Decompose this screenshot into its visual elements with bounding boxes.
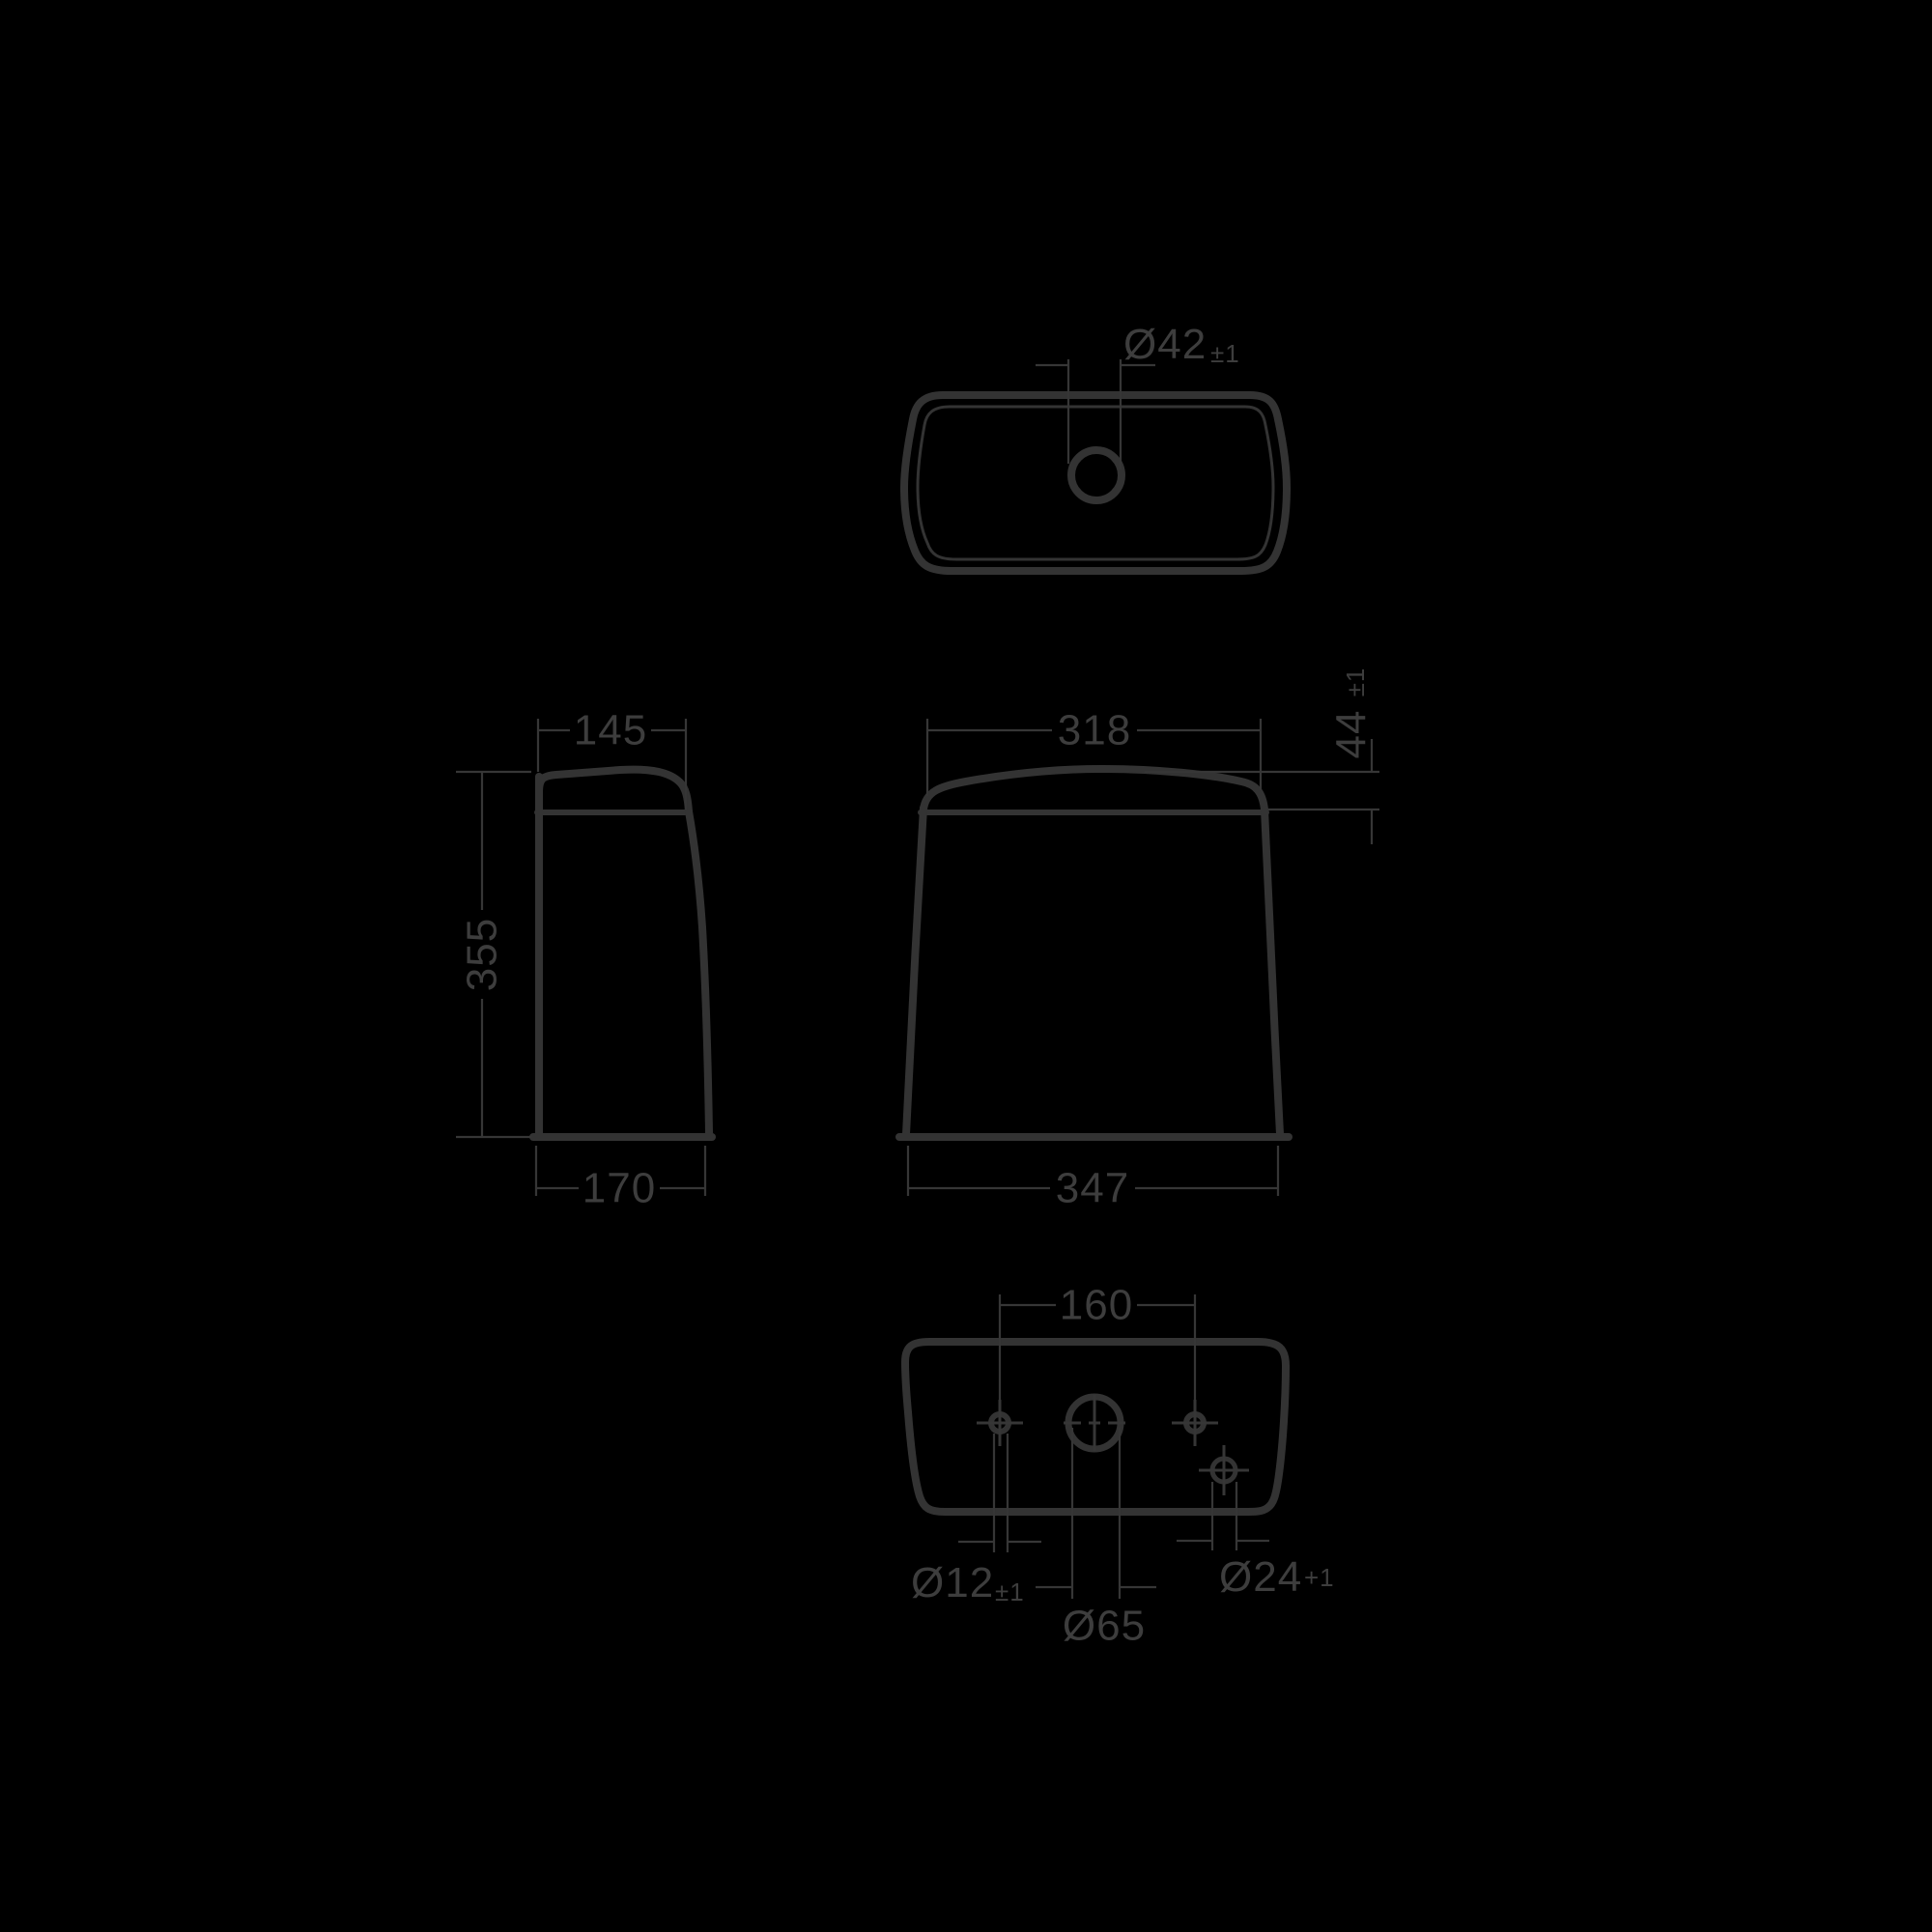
side-right-edge xyxy=(689,811,709,1133)
crosshair xyxy=(977,1400,1023,1446)
dim-label-front-bottom-width: 347 xyxy=(1056,1165,1129,1212)
fixing-hole-right-marker xyxy=(1172,1400,1218,1446)
front-left-edge xyxy=(906,808,923,1134)
technical-drawing: Ø42 ±1 145 355 170 xyxy=(0,0,1932,1932)
extension-line xyxy=(994,1434,1008,1552)
side-view: 145 355 170 xyxy=(456,707,712,1212)
dim-inlet-hole-diameter: Ø24 +1 xyxy=(1177,1482,1335,1601)
dim-label-fixing-hole-spacing: 160 xyxy=(1060,1282,1133,1329)
front-top-arc xyxy=(923,769,1264,810)
fixing-hole-left-marker xyxy=(977,1400,1023,1446)
dim-label-hole-diameter: Ø42 xyxy=(1123,321,1207,368)
dim-flush-valve-diameter: Ø65 xyxy=(1036,1428,1156,1650)
top-view-inner-outline xyxy=(918,407,1273,559)
dim-side-top-width: 145 xyxy=(538,707,686,810)
top-view-outer-outline xyxy=(904,395,1287,571)
dim-side-height: 355 xyxy=(456,772,531,1137)
bottom-view: 160 Ø12 ±1 Ø65 xyxy=(905,1282,1335,1650)
dim-label-front-lid-height: 44 xyxy=(1328,710,1376,759)
dim-tolerance-hole-diameter: ±1 xyxy=(1210,339,1240,368)
top-view: Ø42 ±1 xyxy=(904,321,1287,571)
dim-label-side-top-width: 145 xyxy=(574,707,647,754)
dim-fixing-hole-diameter: Ø12 ±1 xyxy=(911,1434,1041,1606)
front-view: 318 44 ±1 347 xyxy=(899,668,1379,1212)
dim-side-bottom-depth: 170 xyxy=(536,1146,705,1212)
dim-tolerance-fixing-hole: ±1 xyxy=(995,1577,1025,1606)
dim-front-bottom-width: 347 xyxy=(908,1146,1278,1212)
dim-label-inlet-hole-diameter: Ø24 xyxy=(1219,1553,1302,1601)
lid-button-hole xyxy=(1071,450,1122,500)
dim-label-front-top-width: 318 xyxy=(1058,707,1131,754)
dim-label-side-height: 355 xyxy=(459,918,506,991)
drawing-canvas: Ø42 ±1 145 355 170 xyxy=(0,0,1932,1932)
front-right-edge xyxy=(1264,810,1280,1134)
dim-label-flush-valve-diameter: Ø65 xyxy=(1063,1603,1146,1650)
dim-tolerance-inlet-hole: +1 xyxy=(1304,1563,1335,1592)
crosshair xyxy=(1199,1445,1249,1495)
side-lid-outline xyxy=(539,770,689,811)
crosshair xyxy=(1172,1400,1218,1446)
dim-tolerance-front-lid-height: ±1 xyxy=(1341,668,1370,697)
dim-label-fixing-hole-diameter: Ø12 xyxy=(911,1559,994,1606)
inlet-hole-marker xyxy=(1199,1445,1249,1495)
dim-label-side-bottom-depth: 170 xyxy=(582,1165,656,1212)
